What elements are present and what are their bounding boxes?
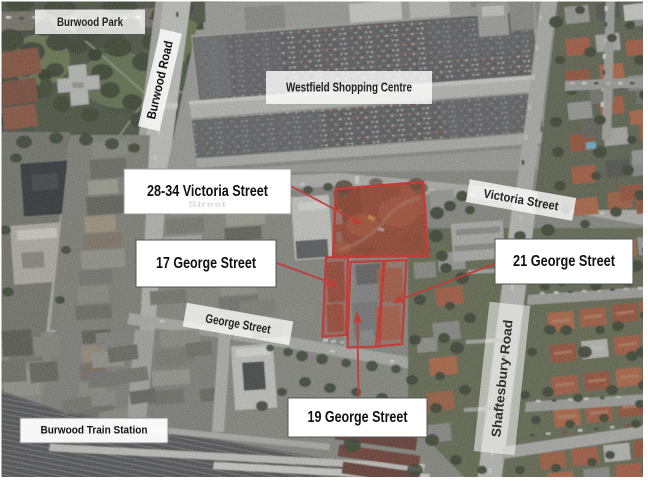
svg-text:28-34 Victoria Street: 28-34 Victoria Street	[147, 183, 269, 200]
svg-text:Street: Street	[188, 199, 226, 209]
svg-text:Burwood Train Station: Burwood Train Station	[41, 425, 148, 437]
svg-text:17 George Street: 17 George Street	[156, 255, 257, 272]
svg-text:Burwood Park: Burwood Park	[57, 15, 123, 29]
svg-text:21 George Street: 21 George Street	[513, 253, 616, 270]
svg-text:19 George Street: 19 George Street	[308, 409, 409, 426]
svg-text:Westfield Shopping Centre: Westfield Shopping Centre	[286, 81, 412, 95]
